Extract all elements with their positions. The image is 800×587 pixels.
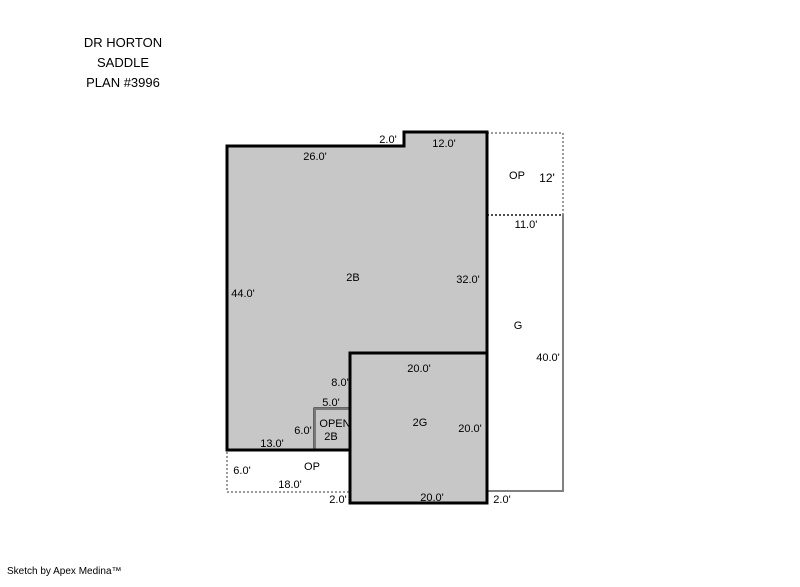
area-2g-label: 2G	[413, 417, 428, 429]
dim-2g-bottom-width: 20.0'	[420, 492, 444, 504]
dim-2g-top-width: 20.0'	[407, 363, 431, 375]
dim-open-patio-lower-width: 18.0'	[278, 479, 302, 491]
dim-2g-bottom-offset-right: 2.0'	[493, 494, 510, 506]
dim-main-right-height: 32.0'	[456, 274, 480, 286]
dim-open-below-offset: 8.0'	[331, 377, 348, 389]
area-open-below-label-line2: 2B	[324, 431, 337, 443]
dim-garage-top-width: 11.0'	[515, 219, 538, 231]
area-open-patio-upper-label: OP	[509, 170, 525, 182]
dim-main-left-height: 44.0'	[231, 288, 255, 300]
dim-2g-right-height: 20.0'	[458, 423, 482, 435]
dim-garage-right-height: 40.0'	[536, 352, 560, 364]
sketch-credit: Sketch by Apex Medina™	[7, 566, 122, 577]
dim-bottom-left-width: 13.0'	[260, 438, 284, 450]
dim-top-left-width: 26.0'	[303, 151, 327, 163]
floor-plan-sketch: 26.0' 2.0' 12.0' OP 12' 11.0' 2B 32.0' 4…	[0, 0, 800, 587]
dim-open-patio-lower-height: 6.0'	[233, 465, 250, 477]
dim-2g-bottom-offset-left: 2.0'	[329, 494, 346, 506]
dim-top-right-width: 12.0'	[432, 138, 456, 150]
area-garage-label: G	[514, 320, 523, 332]
dim-open-below-height: 6.0'	[294, 425, 311, 437]
area-2b-label: 2B	[346, 272, 359, 284]
dim-top-step: 2.0'	[379, 134, 396, 146]
dim-open-below-width: 5.0'	[322, 397, 339, 409]
dim-open-patio-upper-height: 12'	[539, 171, 555, 185]
area-open-patio-lower-label: OP	[304, 461, 320, 473]
area-open-below-label-line1: OPEN	[319, 418, 350, 430]
